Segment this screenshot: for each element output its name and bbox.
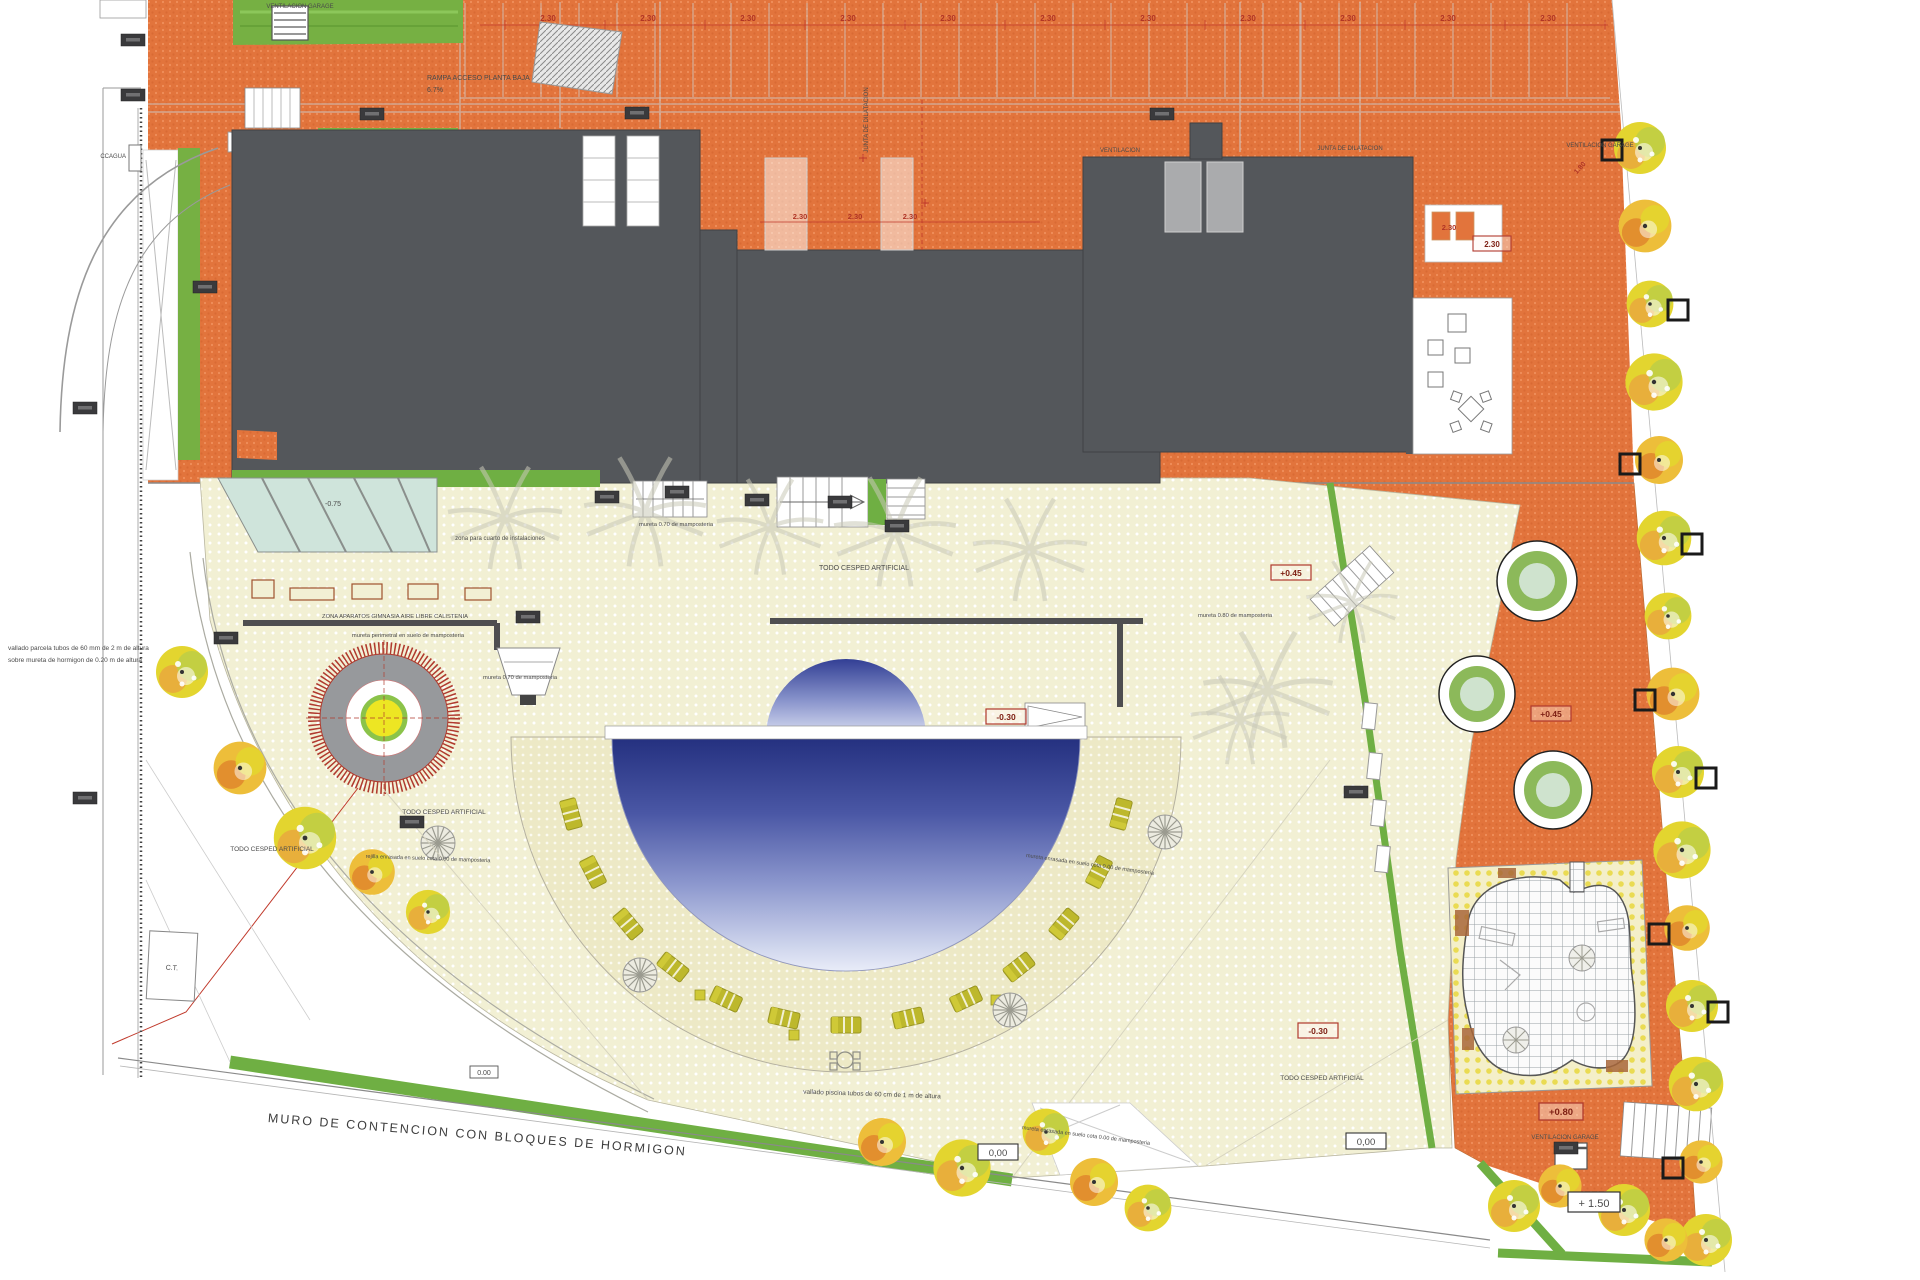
svg-text:0.00: 0.00: [477, 1070, 491, 1077]
svg-text:+ 1.50: + 1.50: [1579, 1198, 1610, 1210]
svg-text:2.30: 2.30: [1140, 14, 1156, 23]
svg-text:2.30: 2.30: [840, 14, 856, 23]
svg-text:C.T.: C.T.: [165, 965, 178, 973]
svg-text:+0.45: +0.45: [1540, 709, 1562, 719]
dim-chip-230: 2.30: [1473, 236, 1511, 251]
site-plan-page: 2.30 2.30 2.30 2.30 2.30 2.30 2.30 2.30 …: [0, 0, 1920, 1280]
label-zona-gym: ZONA APARATOS GIMNASIA AIRE LIBRE CALIST…: [322, 614, 468, 620]
left-margin-strips: [143, 148, 200, 480]
building-right-wing: [1083, 157, 1413, 452]
dim-bay: 2.30: [540, 14, 556, 23]
label-ventilacion-garage-topright: VENTILACION GARAGE: [1566, 143, 1633, 149]
site-plan-drawing: 2.30 2.30 2.30 2.30 2.30 2.30 2.30 2.30 …: [0, 0, 1920, 1280]
label-junta-right: JUNTA DE DILATACION: [1317, 146, 1382, 152]
svg-text:0,00: 0,00: [989, 1148, 1008, 1159]
label-mureta-perimetral: mureta perimetral en suelo de mamposteri…: [352, 633, 465, 639]
garage-vent-grille: [272, 6, 308, 40]
svg-text:0,00: 0,00: [1357, 1137, 1376, 1148]
svg-text:+0.45: +0.45: [1280, 568, 1302, 578]
svg-text:2.30: 2.30: [1484, 240, 1500, 249]
level-chip-cero-a: 0,00: [978, 1144, 1018, 1160]
label-ventilacion-right: VENTILACION: [1100, 148, 1140, 154]
label-ventilacion-garage-bottom: VENTILACION GARAGE: [1531, 1135, 1598, 1141]
label-cesped-left: TODO CESPED ARTIFICIAL: [230, 846, 314, 853]
level-chip-p080: +0.80: [1539, 1103, 1583, 1120]
label-ccagua: CCAGUA: [100, 154, 126, 160]
svg-text:2.30: 2.30: [1442, 223, 1457, 232]
hatched-ramp-area: [532, 22, 622, 94]
svg-text:2.30: 2.30: [1040, 14, 1056, 23]
level-ramp: -0.75: [325, 501, 341, 508]
label-vallado2: sobre mureta de hormigon de 0.20 m de al…: [8, 657, 142, 664]
parasol-icon: [623, 958, 657, 992]
playground: [1448, 860, 1652, 1094]
svg-text:+0.80: +0.80: [1549, 1107, 1573, 1118]
transformer-box: C.T.: [146, 931, 197, 1001]
level-chip-p045-a: +0.45: [1531, 706, 1571, 721]
label-junta-vertical: JUNTA DE DILATACION: [864, 87, 870, 152]
parasol-icon: [1148, 815, 1182, 849]
label-rampa-slope: 6.7%: [427, 87, 443, 94]
level-chip-m030-a: -0.30: [986, 709, 1026, 724]
label-mureta070-b: mureta 0.70 de mamposteria: [483, 675, 558, 681]
building-stub: [1190, 123, 1222, 159]
svg-text:-0.30: -0.30: [1308, 1026, 1328, 1036]
stair-topleft: [245, 88, 300, 128]
building-corridor: [700, 230, 737, 483]
parasol-icon: [993, 993, 1027, 1027]
hedge-notch-orange: [237, 430, 277, 460]
level-chip-m030-b: -0.30: [1298, 1023, 1338, 1038]
label-mureta080: mureta 0.80 de mamposteria: [1198, 613, 1273, 619]
svg-text:2.30: 2.30: [903, 212, 918, 221]
label-cesped-right: TODO CESPED ARTIFICIAL: [1280, 1075, 1364, 1082]
label-mureta070-a: mureta 0.70 de mamposteria: [639, 522, 714, 528]
pool-rim: [605, 726, 1087, 739]
svg-text:2.30: 2.30: [848, 212, 863, 221]
svg-text:-0.30: -0.30: [996, 712, 1016, 722]
level-chip-p045-b: +0.45: [1271, 565, 1311, 580]
terrace: [1406, 298, 1512, 454]
svg-text:2.30: 2.30: [1340, 14, 1356, 23]
svg-text:2.30: 2.30: [740, 14, 756, 23]
svg-text:2.30: 2.30: [793, 212, 808, 221]
label-zona-inst: zona para cuarto de instalaciones: [455, 536, 545, 542]
level-chip-cero-b: 0,00: [1346, 1133, 1386, 1149]
svg-text:2.30: 2.30: [1240, 14, 1256, 23]
level-chip-cero-c: 0.00: [470, 1066, 498, 1078]
label-rampa: RAMPA ACCESO PLANTA BAJA: [427, 75, 530, 82]
level-chip-p150: + 1.50: [1568, 1192, 1620, 1212]
label-cesped-mid: TODO CESPED ARTIFICIAL: [402, 809, 486, 816]
parasol-icon: [421, 826, 455, 860]
svg-text:2.30: 2.30: [1440, 14, 1456, 23]
label-ventilacion-garage-top: VENTILACION GARAGE: [266, 4, 333, 10]
svg-text:2.30: 2.30: [940, 14, 956, 23]
playground-safety-surface: [1463, 877, 1635, 1076]
bike-rack-patch: 2.30: [1425, 205, 1502, 262]
svg-text:2.30: 2.30: [640, 14, 656, 23]
label-cesped-center: TODO CESPED ARTIFICIAL: [819, 565, 909, 572]
svg-text:2.30: 2.30: [1540, 14, 1556, 23]
label-vallado1: vallado parcela tubos de 60 mm de 2 m de…: [8, 645, 149, 652]
